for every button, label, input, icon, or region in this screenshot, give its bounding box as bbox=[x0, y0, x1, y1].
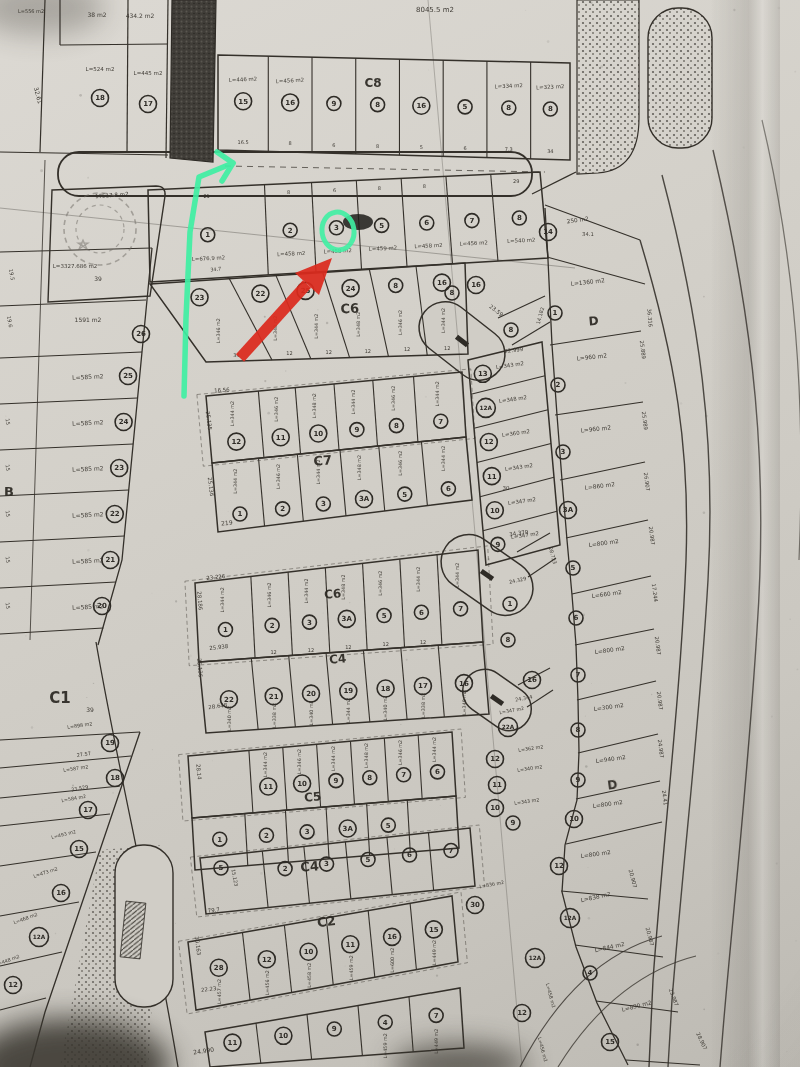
area-label: L=334 m2 bbox=[494, 82, 522, 89]
scanned-cadastral-map-photo: 181715169816588L=446 m2L=456 m2L=334 m2L… bbox=[0, 0, 800, 1067]
road-outline bbox=[640, 240, 687, 1067]
map-line bbox=[40, 0, 45, 152]
parcel-number-badge: 8 bbox=[389, 278, 403, 292]
circular-stamp bbox=[64, 193, 136, 265]
edge-measure: 20.987 bbox=[656, 691, 664, 710]
svg-text:8: 8 bbox=[450, 289, 455, 297]
parcel-number-badge: 6 bbox=[414, 605, 428, 619]
area-label: L=585 m2 bbox=[72, 418, 104, 427]
width-label: 7.3 bbox=[505, 146, 513, 152]
area-label: L=346 m2 bbox=[274, 397, 279, 422]
area-label: L=446 m2 bbox=[229, 76, 257, 83]
parcel-number-badge: 5 bbox=[381, 818, 395, 832]
parcel-number-badge: 2 bbox=[259, 828, 273, 842]
parcel-number-badge: 3A bbox=[560, 502, 577, 519]
parcel-number-badge: 6 bbox=[569, 611, 583, 625]
parcel-number-badge: 5 bbox=[361, 853, 375, 867]
area-label: L=584 m2 bbox=[61, 794, 87, 803]
parcel-divider bbox=[264, 185, 268, 275]
area-label: L=344 m2 bbox=[416, 567, 421, 592]
area-label: L=800 m2 bbox=[580, 849, 611, 859]
area-label: L=346 m2 bbox=[398, 310, 403, 335]
parcel-divider bbox=[379, 446, 385, 511]
svg-text:12: 12 bbox=[490, 755, 500, 763]
parcel-number-badge: 21 bbox=[102, 552, 119, 569]
map-text: 19.6 bbox=[6, 315, 14, 327]
parcel-number-badge: 3 bbox=[556, 445, 570, 459]
parcel-number-badge: 8 bbox=[445, 286, 459, 300]
svg-text:28: 28 bbox=[214, 964, 224, 972]
map-text: 25.136 bbox=[196, 658, 204, 678]
parcel-number-badge: 26 bbox=[133, 326, 150, 343]
parcel-divider bbox=[251, 576, 255, 658]
svg-text:5: 5 bbox=[379, 222, 384, 230]
parcel-number-badge: 8 bbox=[512, 211, 526, 225]
parcel-number-badge: 2 bbox=[283, 223, 297, 237]
block-label: C6 bbox=[340, 301, 359, 317]
area-label: L=600 m2 bbox=[390, 948, 395, 973]
block-label: C5 bbox=[303, 789, 321, 804]
area-label: L=344 m2 bbox=[314, 314, 319, 339]
area-label: L=362 m2 bbox=[518, 744, 544, 752]
parcel-divider bbox=[369, 269, 388, 356]
parcel-number-badge: 8 bbox=[363, 771, 377, 785]
block-label: C1 bbox=[49, 689, 70, 707]
svg-text:26: 26 bbox=[136, 330, 146, 338]
edge-measure: 20.907 bbox=[628, 869, 639, 888]
parcel-number-badge: 10 bbox=[486, 502, 503, 519]
parcel-number-badge: 17 bbox=[140, 96, 157, 113]
area-label: L=340 m2 bbox=[517, 764, 543, 772]
area-label: L=348 m2 bbox=[357, 455, 362, 480]
area-label: L=344 m2 bbox=[233, 469, 238, 494]
map-text: 30 bbox=[503, 485, 510, 491]
parcel-divider bbox=[387, 837, 392, 894]
svg-text:9: 9 bbox=[495, 541, 500, 549]
width-label: 12 bbox=[286, 350, 292, 356]
edge-measure: 23.987 bbox=[668, 988, 680, 1007]
svg-text:6: 6 bbox=[446, 485, 451, 493]
svg-text:12: 12 bbox=[8, 981, 18, 989]
parcel-number-badge: 7 bbox=[397, 768, 411, 782]
svg-text:7: 7 bbox=[401, 771, 406, 779]
area-label: L=338 m2 bbox=[272, 703, 277, 728]
road-outline bbox=[713, 150, 761, 1067]
svg-text:23: 23 bbox=[114, 464, 124, 472]
area-label: L=585 m2 bbox=[72, 556, 104, 565]
parcel-number-badge: 18 bbox=[377, 680, 394, 697]
parcel-number-badge: 16 bbox=[433, 274, 450, 291]
svg-text:7: 7 bbox=[434, 1012, 439, 1020]
parcel-number-badge: 11 bbox=[489, 777, 506, 794]
parcel-divider bbox=[249, 750, 253, 812]
area-label: L=456 m2 bbox=[459, 239, 487, 246]
map-line bbox=[566, 520, 648, 538]
map-text: 434.2 m2 bbox=[126, 12, 155, 19]
edge-measure: 28.907 bbox=[695, 1031, 708, 1050]
area-label: L=493 m2 bbox=[51, 829, 77, 840]
svg-text:3: 3 bbox=[324, 860, 329, 868]
svg-text:6: 6 bbox=[407, 851, 412, 859]
parcel-number-badge: 11 bbox=[483, 468, 500, 485]
area-label: L=456 m2 bbox=[276, 77, 304, 84]
area-label: L=473 m2 bbox=[33, 866, 58, 879]
svg-text:11: 11 bbox=[487, 473, 497, 481]
parcel-number-badge: 30 bbox=[467, 897, 484, 914]
svg-text:12: 12 bbox=[484, 438, 494, 446]
area-label: L=940 m2 bbox=[595, 754, 626, 764]
svg-text:7: 7 bbox=[458, 605, 463, 613]
map-line bbox=[626, 1060, 700, 1065]
area-label: L=338 m2 bbox=[421, 693, 426, 718]
parcel-number-badge: 3A bbox=[338, 610, 355, 627]
svg-text:22: 22 bbox=[110, 510, 120, 518]
parcel-number-badge: 16 bbox=[282, 94, 299, 111]
svg-text:8: 8 bbox=[548, 105, 553, 113]
parcel-divider bbox=[401, 648, 407, 720]
parcel-divider bbox=[418, 735, 422, 799]
width-label: 12 bbox=[270, 649, 276, 655]
svg-text:18: 18 bbox=[110, 774, 120, 782]
svg-text:19: 19 bbox=[105, 739, 115, 747]
parcel-number-badge: 6 bbox=[420, 216, 434, 230]
area-label: L=344 m2 bbox=[435, 381, 440, 406]
edge-measure: 25.989 bbox=[641, 411, 649, 430]
area-label: L=1360 m2 bbox=[571, 277, 606, 287]
parcel-block bbox=[188, 896, 458, 1010]
map-text: 38 m2 bbox=[87, 11, 106, 18]
parcel-divider bbox=[289, 656, 296, 727]
svg-text:16: 16 bbox=[437, 279, 447, 287]
svg-text:8: 8 bbox=[393, 282, 398, 290]
svg-text:10: 10 bbox=[490, 507, 500, 515]
parcel-number-badge: 12 bbox=[514, 1005, 531, 1022]
svg-text:11: 11 bbox=[276, 434, 286, 442]
width-label: 15 bbox=[4, 556, 11, 564]
parcel-number-badge: 19 bbox=[340, 683, 357, 700]
svg-text:5: 5 bbox=[386, 822, 391, 830]
stippled-island bbox=[648, 8, 712, 148]
svg-text:13: 13 bbox=[478, 370, 488, 378]
area-label: L=800 m2 bbox=[592, 799, 623, 809]
parcel-divider bbox=[358, 1006, 362, 1056]
svg-text:9: 9 bbox=[332, 1025, 337, 1033]
block-label: C8 bbox=[364, 76, 381, 90]
svg-text:11: 11 bbox=[345, 941, 355, 949]
parcel-divider bbox=[251, 658, 258, 729]
parcel-number-badge: 10 bbox=[300, 943, 317, 960]
parcel-number-badge: 1 bbox=[218, 623, 232, 637]
svg-text:7: 7 bbox=[469, 217, 474, 225]
map-line bbox=[0, 732, 140, 740]
svg-text:4: 4 bbox=[588, 969, 593, 977]
svg-text:14: 14 bbox=[543, 228, 553, 236]
svg-text:16: 16 bbox=[416, 102, 426, 110]
svg-text:1: 1 bbox=[223, 626, 228, 634]
svg-text:12: 12 bbox=[517, 1009, 527, 1017]
area-label: L=456 m2 bbox=[537, 1037, 548, 1063]
svg-text:7: 7 bbox=[449, 847, 454, 855]
parcel-number-badge: 12A bbox=[30, 928, 49, 947]
map-text: 8045.5 m2 bbox=[416, 6, 454, 14]
parcel-divider bbox=[409, 997, 413, 1052]
parcel-number-badge: 10 bbox=[310, 425, 327, 442]
map-text: 19.5 bbox=[8, 268, 16, 280]
parcel-number-badge: 24 bbox=[342, 280, 359, 297]
map-line bbox=[0, 582, 116, 588]
area-label: L=585 m2 bbox=[72, 372, 104, 381]
area-label: L=344 m2 bbox=[441, 308, 446, 333]
area-label: L=346 m2 bbox=[398, 451, 403, 476]
svg-text:16: 16 bbox=[459, 680, 469, 688]
svg-text:5: 5 bbox=[366, 856, 371, 864]
parcel-number-badge: 17 bbox=[414, 677, 431, 694]
area-label: L=348 m2 bbox=[364, 743, 369, 768]
parcel-number-badge: 8 bbox=[501, 633, 515, 647]
area-label: L=346 m2 bbox=[216, 318, 221, 343]
svg-text:22: 22 bbox=[256, 290, 266, 298]
area-label: L=344 m2 bbox=[331, 746, 336, 771]
svg-text:8: 8 bbox=[367, 774, 372, 782]
parcel-number-badge: 23 bbox=[111, 460, 128, 477]
map-line bbox=[166, 0, 168, 158]
parcel-divider bbox=[363, 650, 369, 722]
parcel-divider bbox=[438, 645, 444, 717]
area-label: L=468 m2 bbox=[13, 912, 38, 925]
area-label: L=348 m2 bbox=[341, 575, 346, 600]
svg-text:22A: 22A bbox=[502, 724, 515, 730]
parcel-number-badge: 12 bbox=[5, 977, 22, 994]
svg-text:3: 3 bbox=[307, 619, 312, 627]
parcel-number-badge: 11 bbox=[224, 1034, 241, 1051]
parcel-block bbox=[218, 55, 570, 160]
svg-text:10: 10 bbox=[490, 804, 500, 812]
width-label: 5 bbox=[420, 144, 423, 150]
svg-text:25: 25 bbox=[123, 372, 133, 380]
parcel-divider bbox=[363, 563, 368, 650]
parcel-divider bbox=[367, 803, 370, 855]
area-label: L=340 m2 bbox=[383, 695, 388, 720]
parcel-number-badge: 11 bbox=[260, 778, 277, 795]
map-text: 39 bbox=[94, 275, 102, 282]
parcel-number-badge: 6 bbox=[403, 848, 417, 862]
map-text: 22.23 bbox=[201, 985, 218, 993]
map-line bbox=[577, 681, 656, 700]
parcel-number-badge: 1 bbox=[233, 507, 247, 521]
map-text: 25.938 bbox=[209, 643, 229, 651]
svg-text:16: 16 bbox=[387, 933, 397, 941]
parcel-number-badge: 10 bbox=[487, 800, 504, 817]
svg-text:5: 5 bbox=[382, 612, 387, 620]
width-label: 16.5 bbox=[238, 139, 249, 145]
svg-text:6: 6 bbox=[424, 219, 429, 227]
map-line bbox=[60, 44, 168, 45]
parcel-number-badge: 12 bbox=[228, 433, 245, 450]
width-label: 12 bbox=[308, 647, 314, 653]
parcel-number-badge: 25 bbox=[120, 368, 137, 385]
parcel-number-badge: 22 bbox=[252, 285, 269, 302]
svg-text:3: 3 bbox=[561, 448, 566, 456]
parcel-number-badge: 9 bbox=[350, 423, 364, 437]
edge-measure: 25.889 bbox=[639, 340, 647, 359]
svg-text:6: 6 bbox=[435, 768, 440, 776]
parcel-number-badge: 15 bbox=[425, 921, 442, 938]
svg-text:7: 7 bbox=[576, 671, 581, 679]
area-label: L=860 m2 bbox=[584, 481, 615, 491]
area-label: L=458 m2 bbox=[277, 250, 305, 257]
map-line bbox=[0, 628, 103, 634]
area-label: L=449 m2 bbox=[434, 1029, 439, 1054]
svg-text:12: 12 bbox=[231, 438, 241, 446]
svg-text:4: 4 bbox=[383, 1019, 388, 1027]
svg-text:10: 10 bbox=[297, 780, 307, 788]
svg-text:3: 3 bbox=[305, 828, 310, 836]
parcel-number-badge: 7 bbox=[444, 844, 458, 858]
parcel-divider bbox=[245, 814, 248, 866]
map-line bbox=[578, 734, 658, 753]
area-label: L=344 m2 bbox=[304, 578, 309, 603]
width-label: 8 bbox=[289, 140, 292, 146]
svg-text:20: 20 bbox=[306, 690, 316, 698]
parcel-block bbox=[212, 437, 472, 532]
parcel-divider bbox=[340, 450, 346, 516]
map-line bbox=[0, 852, 96, 866]
svg-text:2: 2 bbox=[264, 832, 269, 840]
map-text: 34.7 bbox=[210, 265, 222, 272]
svg-text:17: 17 bbox=[83, 806, 93, 814]
parcel-number-badge: 5 bbox=[566, 561, 580, 575]
parcel-number-badge: 16 bbox=[53, 885, 70, 902]
width-label: 12 bbox=[383, 641, 389, 647]
width-label: 21 bbox=[203, 193, 209, 199]
svg-text:9: 9 bbox=[511, 819, 516, 827]
svg-text:11: 11 bbox=[492, 781, 502, 789]
parcel-number-badge: 7 bbox=[571, 668, 585, 682]
parcel-number-badge: 3 bbox=[302, 615, 316, 629]
svg-text:2: 2 bbox=[288, 227, 293, 235]
svg-text:3A: 3A bbox=[342, 615, 353, 623]
width-label: 15 bbox=[4, 464, 11, 472]
svg-text:1: 1 bbox=[205, 231, 210, 239]
parcel-number-badge: 12A bbox=[476, 398, 495, 417]
svg-text:2: 2 bbox=[280, 505, 285, 513]
parcel-number-badge: 3A bbox=[356, 491, 373, 508]
parcel-number-badge: 7 bbox=[429, 1008, 443, 1022]
svg-text:15: 15 bbox=[429, 926, 439, 934]
area-label: L=960 m2 bbox=[580, 424, 611, 433]
map-text: 30.163 bbox=[194, 936, 202, 956]
parcel-number-badge: 12 bbox=[551, 858, 568, 875]
parcel-number-badge: 7 bbox=[434, 414, 448, 428]
svg-text:9: 9 bbox=[354, 426, 359, 434]
area-label: L=585 m2 bbox=[72, 510, 104, 519]
area-label: L=360 m2 bbox=[502, 428, 531, 438]
width-label: 8 bbox=[423, 183, 426, 189]
parcel-number-badge: 1 bbox=[213, 832, 227, 846]
area-label: L=323 m2 bbox=[536, 83, 564, 90]
dark-hatched-strip bbox=[170, 0, 216, 162]
parcel-divider bbox=[326, 807, 329, 859]
parcel-number-badge: 12A bbox=[526, 949, 545, 968]
svg-text:8: 8 bbox=[394, 422, 399, 430]
svg-text:11: 11 bbox=[263, 783, 273, 791]
width-label: 34 bbox=[547, 148, 553, 154]
parcel-divider bbox=[262, 851, 268, 907]
svg-text:5: 5 bbox=[463, 103, 468, 111]
block-label: C2 bbox=[316, 913, 337, 930]
svg-text:18: 18 bbox=[381, 685, 391, 693]
edge-measure: 20.987 bbox=[654, 636, 662, 655]
block-label: D bbox=[588, 314, 599, 329]
svg-text:8: 8 bbox=[517, 214, 522, 222]
width-label: 12 bbox=[404, 346, 410, 352]
parcel-number-badge: 8 bbox=[502, 101, 516, 115]
map-line bbox=[0, 352, 142, 358]
edge-measure: 24.987 bbox=[657, 739, 665, 758]
svg-text:12A: 12A bbox=[564, 915, 577, 921]
area-label: L=344 m2 bbox=[455, 563, 460, 588]
svg-text:3A: 3A bbox=[343, 825, 354, 833]
map-line bbox=[555, 402, 643, 415]
parcel-divider bbox=[410, 903, 416, 969]
area-label: L=348 m2 bbox=[312, 393, 317, 418]
area-label: L=800 m2 bbox=[588, 538, 619, 548]
width-label: 8 bbox=[376, 143, 379, 149]
block-label: C6 bbox=[323, 586, 341, 601]
svg-text:23: 23 bbox=[195, 294, 205, 302]
map-text: 28.14 bbox=[195, 764, 202, 781]
svg-text:18: 18 bbox=[95, 94, 105, 102]
svg-text:2: 2 bbox=[270, 622, 275, 630]
svg-text:12A: 12A bbox=[33, 934, 46, 940]
parcel-number-badge: 5 bbox=[375, 218, 389, 232]
edge-measure: 34.1 bbox=[582, 231, 594, 237]
road-outline bbox=[662, 175, 710, 1067]
parcel-divider bbox=[288, 572, 292, 655]
area-label: L=344 m2 bbox=[263, 752, 268, 777]
svg-text:3A: 3A bbox=[359, 495, 370, 503]
map-line bbox=[0, 444, 133, 450]
area-label: L=340 m2 bbox=[309, 700, 314, 725]
parcel-number-badge: 12 bbox=[258, 951, 275, 968]
svg-text:10: 10 bbox=[313, 430, 323, 438]
svg-text:8: 8 bbox=[509, 326, 514, 334]
parcel-number-badge: 7 bbox=[454, 602, 468, 616]
parcel-number-badge: 2 bbox=[265, 618, 279, 632]
parcel-number-badge: 8 bbox=[371, 98, 385, 112]
area-label: L=676.9 m2 bbox=[192, 254, 226, 262]
parcel-divider bbox=[334, 384, 339, 450]
parcel-divider bbox=[283, 747, 287, 810]
parcel-divider bbox=[295, 388, 300, 454]
width-label: 8 bbox=[378, 185, 381, 191]
map-line bbox=[575, 629, 654, 645]
parcel-divider bbox=[350, 741, 354, 804]
parcel-number-badge: 10 bbox=[275, 1027, 292, 1044]
width-label: 6 bbox=[332, 142, 335, 148]
area-label: L=344 m2 bbox=[432, 737, 437, 762]
block-label: C4 bbox=[328, 651, 346, 666]
parcel-number-badge: 2 bbox=[278, 862, 292, 876]
parcel-number-badge: 11 bbox=[342, 936, 359, 953]
parcel-number-badge: 12 bbox=[487, 751, 504, 768]
svg-text:24: 24 bbox=[119, 418, 129, 426]
area-label: L=458 m2 bbox=[414, 242, 442, 249]
map-line bbox=[0, 998, 46, 1010]
block-label: C4 bbox=[300, 858, 320, 875]
parcel-number-badge: 2 bbox=[551, 378, 565, 392]
map-text: L=556 m2 bbox=[18, 8, 44, 14]
